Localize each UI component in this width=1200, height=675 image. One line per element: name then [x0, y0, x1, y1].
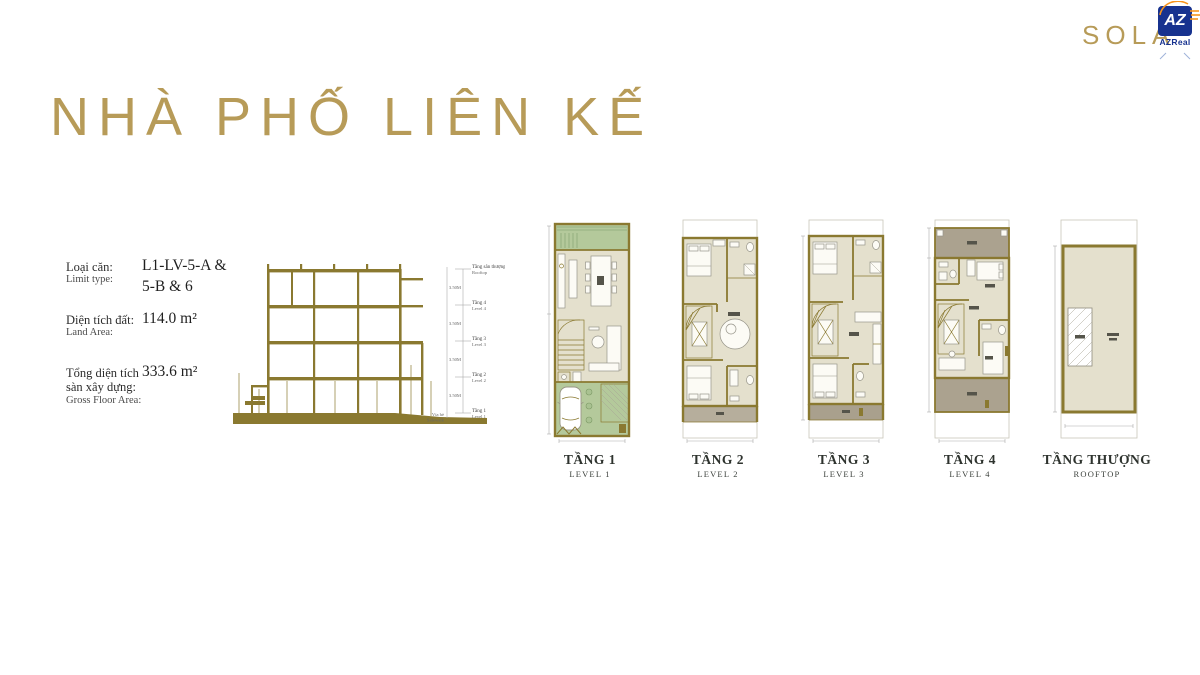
- plants: [586, 389, 592, 423]
- level-label-rooftop-en: Rooftop: [472, 270, 488, 275]
- level-annotation: Tầng sân thượng Rooftop Tầng 4 Level 4 T…: [427, 265, 505, 423]
- car-icon: [558, 387, 584, 430]
- ground-band: [233, 413, 487, 424]
- parapet: [267, 264, 401, 269]
- svg-text:3.50M: 3.50M: [449, 321, 461, 326]
- az-name: AZReal: [1154, 37, 1196, 47]
- bedroom-2: [687, 366, 711, 400]
- level-label-2-en: Level 2: [472, 378, 487, 383]
- level-label-3-en: Level 3: [472, 342, 487, 347]
- label-land-area-vn: Diện tích đất:: [66, 313, 148, 327]
- svg-text:3.50M: 3.50M: [449, 285, 461, 290]
- floorplan-level-1: [545, 216, 635, 444]
- building-section-drawing: Tầng sân thượng Rooftop Tầng 4 Level 4 T…: [225, 255, 505, 440]
- azreal-logo: AZ AZReal: [1154, 6, 1196, 65]
- caption-level-4: TẦNG 4 LEVEL 4: [925, 452, 1015, 479]
- az-logo-mark: AZ: [1158, 6, 1192, 36]
- floorplan-level-2: [673, 216, 763, 444]
- caption-level-2: TẦNG 2 LEVEL 2: [673, 452, 763, 479]
- floorplan-level-3: [799, 216, 889, 444]
- floorplan-rooftop: [1051, 216, 1143, 444]
- caption-level-1: TẦNG 1 LEVEL 1: [545, 452, 635, 479]
- label-gfa-vn: Tổng diện tích sàn xây dựng:: [66, 366, 152, 395]
- slide: SOLA AZ AZReal NHÀ PHỐ LIÊN KẾ Loại căn:: [0, 0, 1200, 675]
- svg-text:3.50M: 3.50M: [449, 393, 461, 398]
- stair-bulkhead: [1068, 308, 1092, 366]
- floorplan-level-4: [925, 216, 1015, 444]
- page-title: NHÀ PHỐ LIÊN KẾ: [50, 86, 653, 148]
- ground-label-vn: Vỉa hè: [432, 412, 444, 417]
- caption-level-3: TẦNG 3 LEVEL 3: [799, 452, 889, 479]
- az-abbr: AZ: [1164, 12, 1185, 29]
- level-label-1-en: Level 1: [472, 414, 487, 419]
- floor-slabs: [251, 269, 423, 387]
- az-roof-lines-icon: [1156, 52, 1194, 60]
- level-label-4-en: Level 4: [472, 306, 487, 311]
- svg-text:3.50M: 3.50M: [449, 357, 461, 362]
- caption-rooftop: TẦNG THƯỢNG ROOFTOP: [1027, 452, 1167, 479]
- bedroom-1: [813, 242, 837, 274]
- wardrobe: [873, 324, 881, 364]
- label-unit-type-vn: Loại căn:: [66, 260, 148, 274]
- label-gfa-en: Gross Floor Area:: [66, 395, 166, 408]
- bedroom-2: [813, 364, 837, 398]
- ground-label-en: Sidewalk: [427, 418, 445, 423]
